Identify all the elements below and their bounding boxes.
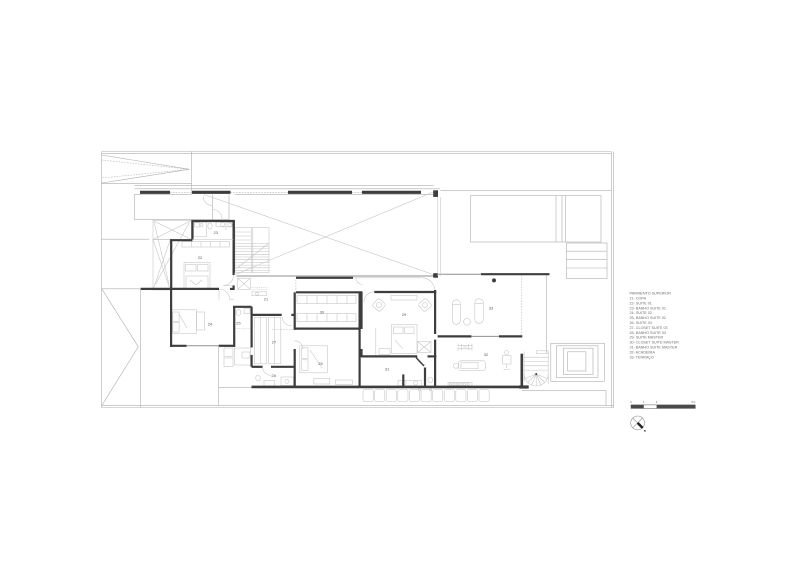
svg-text:28: 28 bbox=[271, 373, 276, 378]
svg-text:29: 29 bbox=[402, 312, 407, 317]
svg-text:32- ACADEMIA: 32- ACADEMIA bbox=[630, 350, 656, 354]
svg-text:28- BANHO SUITE 03: 28- BANHO SUITE 03 bbox=[630, 331, 666, 335]
svg-text:27- CLOSET SUITE 03: 27- CLOSET SUITE 03 bbox=[630, 326, 668, 330]
svg-text:29- SUITE MASTER: 29- SUITE MASTER bbox=[630, 336, 664, 340]
svg-text:21: 21 bbox=[264, 297, 269, 302]
svg-text:31- BANHO SUITE MASTER: 31- BANHO SUITE MASTER bbox=[630, 346, 678, 350]
svg-text:24: 24 bbox=[208, 322, 213, 327]
svg-text:32: 32 bbox=[484, 352, 489, 357]
svg-text:23- BANHO SUITE 01: 23- BANHO SUITE 01 bbox=[630, 306, 666, 310]
svg-text:21- COPA: 21- COPA bbox=[630, 297, 647, 301]
svg-text:30: 30 bbox=[320, 310, 325, 315]
svg-text:30- CLOSET SUITE MASTER: 30- CLOSET SUITE MASTER bbox=[630, 341, 680, 345]
svg-text:PAVIMENTO SUPERIOR: PAVIMENTO SUPERIOR bbox=[630, 292, 672, 296]
svg-text:22- SUITE 01: 22- SUITE 01 bbox=[630, 301, 652, 305]
svg-text:22: 22 bbox=[198, 255, 203, 260]
svg-text:24- SUITE 02: 24- SUITE 02 bbox=[630, 311, 652, 315]
svg-text:25: 25 bbox=[236, 320, 241, 325]
svg-text:33: 33 bbox=[489, 306, 494, 311]
svg-text:27: 27 bbox=[272, 340, 277, 345]
svg-text:26- SUITE 03: 26- SUITE 03 bbox=[630, 321, 652, 325]
svg-text:26: 26 bbox=[318, 361, 323, 366]
svg-text:5m: 5m bbox=[692, 400, 697, 404]
svg-text:23: 23 bbox=[214, 230, 219, 235]
svg-text:33- TERRAÇO: 33- TERRAÇO bbox=[630, 355, 654, 359]
svg-text:25- BANHO SUITE 02: 25- BANHO SUITE 02 bbox=[630, 316, 666, 320]
svg-text:31: 31 bbox=[385, 367, 390, 372]
